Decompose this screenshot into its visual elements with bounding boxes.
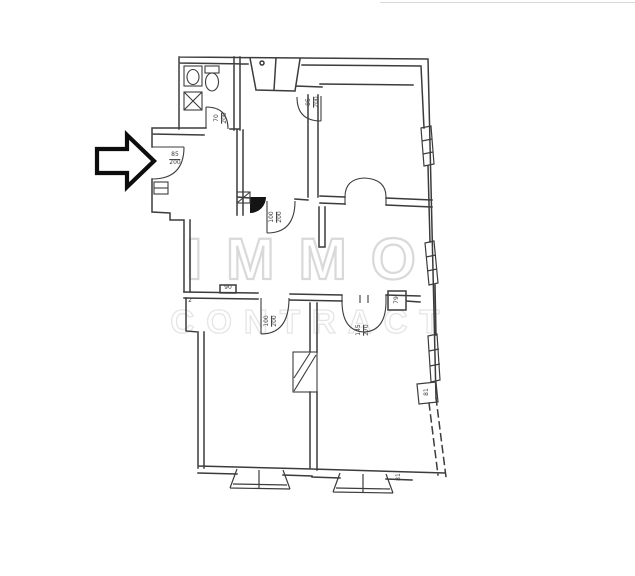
toilet xyxy=(205,66,219,91)
meter-cabinet xyxy=(154,182,168,194)
watermark-contract: CONTRACT xyxy=(170,303,451,340)
survey-point xyxy=(260,61,264,65)
window-bottom-right xyxy=(333,473,393,493)
floor-plan-drawing: IMMO CONTRACT xyxy=(0,0,635,576)
double-door-top-right-room xyxy=(345,178,386,205)
entrance-arrow-icon xyxy=(97,135,154,187)
entrance-door xyxy=(152,147,184,179)
window-bottom-left xyxy=(230,469,290,489)
bathroom-door xyxy=(206,107,228,129)
dashed-wall-bottom-right xyxy=(429,398,446,477)
watermark: IMMO CONTRACT xyxy=(170,227,451,340)
floor-plan-page: IMMO CONTRACT xyxy=(0,0,635,576)
sink xyxy=(184,66,202,86)
window-right-1 xyxy=(421,126,434,166)
door-swing-filled xyxy=(250,197,266,213)
shaft-box xyxy=(184,92,202,110)
watermark-immo: IMMO xyxy=(186,227,440,292)
wall-pier-box-right xyxy=(417,382,438,404)
chimney-flue xyxy=(293,352,317,392)
